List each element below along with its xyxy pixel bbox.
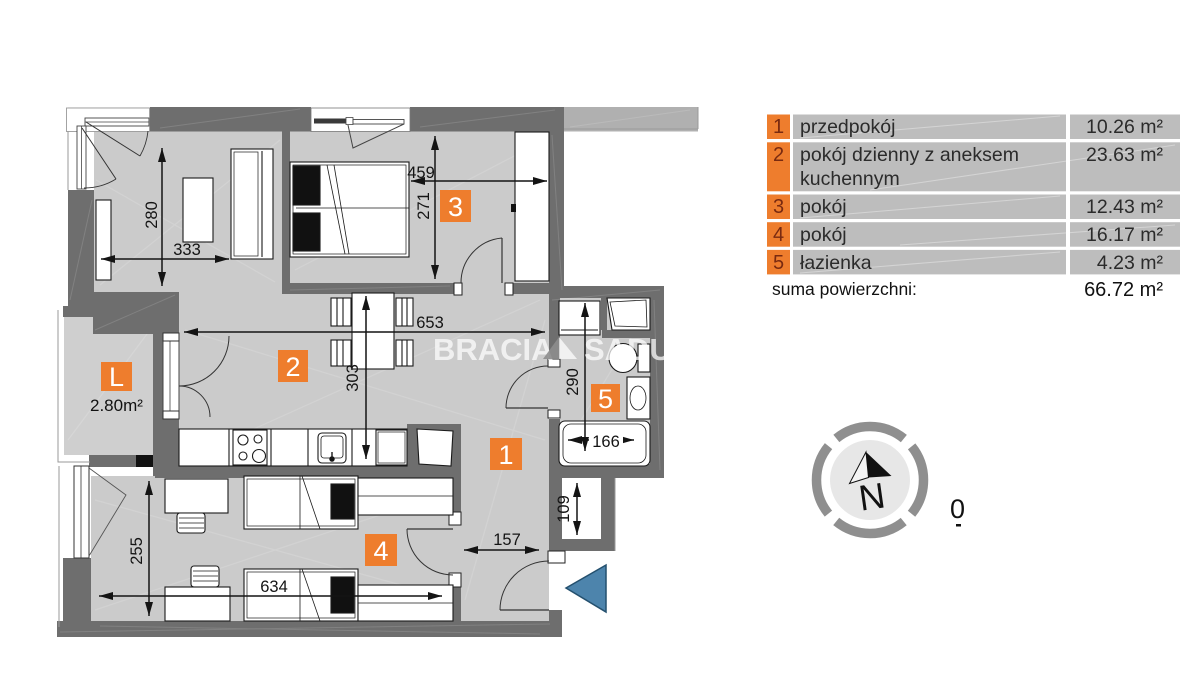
svg-text:653: 653 bbox=[416, 314, 444, 332]
svg-text:kuchennym: kuchennym bbox=[800, 168, 900, 190]
svg-text:4.23 m²: 4.23 m² bbox=[1097, 252, 1164, 274]
svg-text:4: 4 bbox=[373, 536, 388, 566]
svg-text:pokój: pokój bbox=[800, 224, 847, 246]
svg-text:pokój: pokój bbox=[800, 196, 847, 218]
svg-text:303: 303 bbox=[344, 364, 362, 392]
svg-text:2.80m²: 2.80m² bbox=[90, 396, 143, 415]
svg-text:1: 1 bbox=[773, 116, 784, 138]
svg-text:290: 290 bbox=[564, 368, 582, 396]
svg-text:5: 5 bbox=[773, 252, 784, 274]
svg-text:0: 0 bbox=[950, 494, 965, 524]
svg-text:166: 166 bbox=[592, 433, 620, 451]
svg-text:12.43 m²: 12.43 m² bbox=[1086, 196, 1163, 218]
svg-text:4: 4 bbox=[773, 224, 784, 246]
svg-text:2: 2 bbox=[285, 352, 300, 382]
svg-text:10.26 m²: 10.26 m² bbox=[1086, 116, 1163, 138]
svg-text:2: 2 bbox=[773, 144, 784, 166]
svg-text:3: 3 bbox=[773, 196, 784, 218]
svg-text:BRACIA: BRACIA bbox=[433, 332, 554, 367]
svg-text:459: 459 bbox=[407, 164, 435, 182]
svg-text:przedpokój: przedpokój bbox=[800, 116, 895, 138]
svg-text:66.72 m²: 66.72 m² bbox=[1084, 279, 1163, 301]
svg-text:5: 5 bbox=[598, 384, 613, 414]
svg-text:109: 109 bbox=[555, 495, 573, 523]
svg-text:280: 280 bbox=[143, 201, 161, 229]
svg-text:3: 3 bbox=[448, 192, 463, 222]
svg-text:suma powierzchni:: suma powierzchni: bbox=[772, 279, 917, 299]
svg-text:271: 271 bbox=[415, 192, 433, 220]
svg-text:L: L bbox=[109, 362, 124, 392]
svg-text:157: 157 bbox=[493, 531, 521, 549]
svg-text:255: 255 bbox=[128, 537, 146, 565]
svg-text:łazienka: łazienka bbox=[800, 252, 872, 274]
svg-text:1: 1 bbox=[498, 440, 513, 470]
svg-text:333: 333 bbox=[173, 241, 201, 259]
svg-text:SADU: SADU bbox=[584, 332, 672, 367]
svg-text:16.17 m²: 16.17 m² bbox=[1086, 224, 1163, 246]
svg-text:23.63 m²: 23.63 m² bbox=[1086, 144, 1163, 166]
svg-text:pokój dzienny z aneksem: pokój dzienny z aneksem bbox=[800, 144, 1019, 166]
svg-text:634: 634 bbox=[260, 578, 288, 596]
